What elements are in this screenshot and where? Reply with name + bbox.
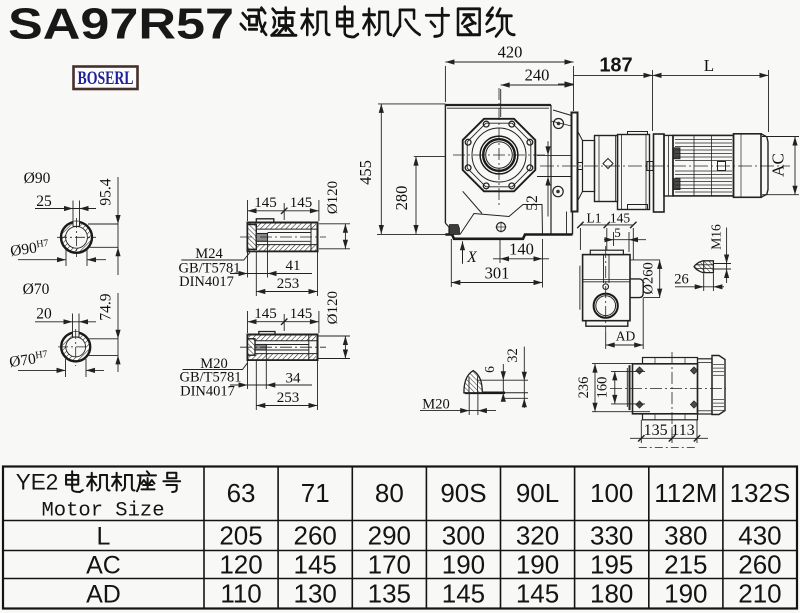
svg-text:90S: 90S — [440, 478, 486, 508]
svg-text:BOSERL: BOSERL — [78, 68, 134, 89]
svg-text:Ø120: Ø120 — [325, 181, 341, 214]
svg-text:210: 210 — [738, 579, 781, 609]
svg-text:455: 455 — [356, 160, 375, 185]
svg-text:26: 26 — [674, 272, 689, 288]
svg-text:110: 110 — [220, 579, 261, 609]
svg-text:205: 205 — [219, 521, 262, 551]
svg-text:140: 140 — [509, 240, 534, 259]
svg-text:253: 253 — [277, 390, 300, 406]
svg-text:20: 20 — [36, 306, 52, 323]
svg-text:145: 145 — [254, 306, 277, 322]
svg-text:195: 195 — [590, 550, 633, 580]
svg-text:280: 280 — [392, 186, 411, 211]
svg-text:300: 300 — [442, 521, 485, 551]
svg-text:113: 113 — [671, 422, 694, 439]
svg-text:90L: 90L — [516, 478, 559, 508]
svg-text:320: 320 — [516, 521, 559, 551]
svg-text:DIN4017: DIN4017 — [180, 384, 235, 400]
svg-text:AC: AC — [86, 552, 121, 580]
svg-text:145: 145 — [516, 579, 559, 609]
svg-text:100: 100 — [590, 478, 633, 508]
svg-text:135: 135 — [368, 579, 411, 609]
svg-text:AC: AC — [769, 153, 788, 177]
svg-text:Ø120: Ø120 — [325, 291, 341, 324]
svg-text:L: L — [704, 56, 714, 75]
svg-text:L: L — [97, 523, 111, 551]
svg-text:420: 420 — [498, 43, 523, 62]
svg-text:Motor Size: Motor Size — [41, 500, 164, 523]
svg-text:145: 145 — [610, 211, 631, 226]
svg-text:34: 34 — [286, 371, 302, 387]
svg-text:260: 260 — [738, 550, 781, 580]
svg-text:25: 25 — [36, 193, 52, 210]
svg-text:145: 145 — [254, 195, 277, 211]
svg-text:52: 52 — [524, 195, 541, 211]
svg-text:Ø260: Ø260 — [641, 262, 657, 294]
svg-text:120: 120 — [219, 550, 262, 580]
svg-text:AD: AD — [86, 581, 121, 609]
svg-text:430: 430 — [738, 521, 781, 551]
svg-text:71: 71 — [301, 478, 330, 508]
svg-text:41: 41 — [286, 258, 301, 274]
svg-text:170: 170 — [368, 550, 411, 580]
svg-text:112M: 112M — [654, 478, 717, 508]
svg-text:130: 130 — [294, 579, 337, 609]
svg-text:190: 190 — [442, 550, 485, 580]
svg-text:145: 145 — [442, 579, 485, 609]
svg-text:215: 215 — [664, 550, 707, 580]
svg-text:Ø90: Ø90 — [24, 170, 51, 187]
svg-text:74.9: 74.9 — [98, 293, 115, 320]
svg-text:301: 301 — [485, 264, 510, 283]
svg-text:330: 330 — [590, 521, 633, 551]
svg-text:L1: L1 — [587, 211, 602, 226]
svg-text:145: 145 — [290, 195, 313, 211]
svg-text:260: 260 — [294, 521, 337, 551]
svg-text:SA97R57: SA97R57 — [8, 0, 234, 49]
svg-text:290: 290 — [368, 521, 411, 551]
svg-text:135: 135 — [644, 422, 668, 439]
svg-text:160: 160 — [595, 377, 611, 399]
svg-text:145: 145 — [294, 550, 337, 580]
svg-text:32: 32 — [505, 348, 521, 363]
svg-text:YE2: YE2 — [16, 470, 59, 495]
svg-text:AD: AD — [616, 329, 636, 344]
svg-text:95.4: 95.4 — [98, 178, 115, 205]
svg-text:Ø70: Ø70 — [23, 281, 50, 298]
svg-text:380: 380 — [664, 521, 707, 551]
svg-text:5: 5 — [614, 225, 621, 240]
svg-text:187: 187 — [599, 55, 632, 77]
svg-text:6: 6 — [482, 366, 497, 373]
svg-text:240: 240 — [525, 66, 550, 85]
svg-text:190: 190 — [664, 579, 707, 609]
svg-text:X: X — [466, 249, 477, 266]
svg-text:63: 63 — [227, 478, 256, 508]
svg-text:180: 180 — [590, 579, 633, 609]
svg-text:M20: M20 — [422, 397, 449, 413]
svg-text:190: 190 — [516, 550, 559, 580]
svg-text:145: 145 — [290, 306, 313, 322]
svg-text:DIN4017: DIN4017 — [179, 274, 234, 290]
svg-text:253: 253 — [277, 276, 300, 292]
svg-text:80: 80 — [375, 478, 404, 508]
svg-text:236: 236 — [576, 377, 592, 399]
svg-text:132S: 132S — [730, 478, 791, 508]
svg-text:M16: M16 — [709, 224, 724, 250]
